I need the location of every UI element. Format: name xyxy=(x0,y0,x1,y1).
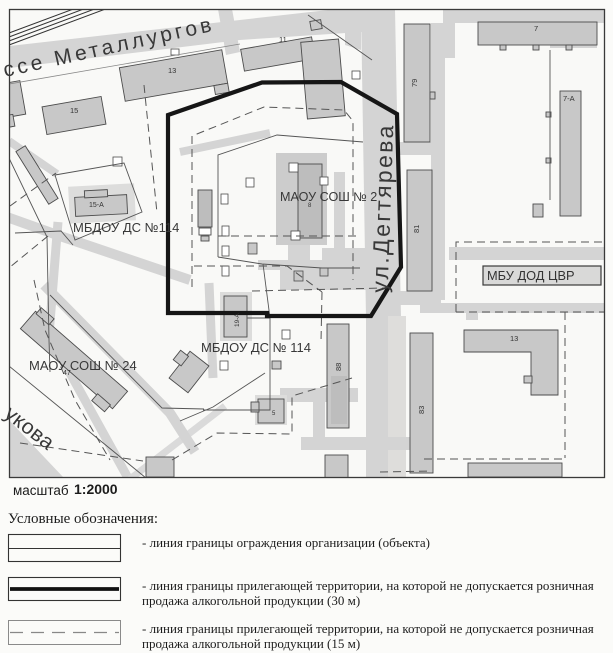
svg-text:19-А: 19-А xyxy=(234,313,241,327)
svg-text:МБДОУ ДС № 114: МБДОУ ДС № 114 xyxy=(201,340,311,355)
svg-text:МАОУ СОШ № 24: МАОУ СОШ № 24 xyxy=(29,358,137,373)
svg-text:81: 81 xyxy=(412,225,421,233)
svg-text:13: 13 xyxy=(168,66,176,75)
svg-text:- линия границы прилегающей те: - линия границы прилегающей территории, … xyxy=(142,621,594,636)
svg-text:МАОУ СОШ № 2: МАОУ СОШ № 2 xyxy=(280,190,377,204)
svg-text:79: 79 xyxy=(410,79,419,87)
svg-text:МБУ ДОД ЦВР: МБУ ДОД ЦВР xyxy=(487,268,575,283)
svg-text:Условные обозначения:: Условные обозначения: xyxy=(8,511,158,527)
svg-text:- линия границы ограждения орг: - линия границы ограждения организации (… xyxy=(142,535,430,550)
svg-text:продажа алкогольной продукции: продажа алкогольной продукции (30 м) xyxy=(142,593,360,608)
svg-text:МБДОУ ДС №114: МБДОУ ДС №114 xyxy=(73,220,179,235)
svg-text:1:2000: 1:2000 xyxy=(74,481,118,497)
svg-text:47: 47 xyxy=(63,370,71,377)
svg-text:- линия границы прилегающей те: - линия границы прилегающей территории, … xyxy=(142,578,594,593)
svg-text:13: 13 xyxy=(510,334,518,343)
svg-text:7-А: 7-А xyxy=(563,94,575,103)
svg-text:масштаб: масштаб xyxy=(13,483,69,498)
svg-text:15-А: 15-А xyxy=(89,202,104,209)
svg-text:11: 11 xyxy=(279,35,287,44)
svg-text:15: 15 xyxy=(70,106,78,115)
svg-text:88: 88 xyxy=(334,363,343,371)
svg-text:продажа алкогольной продукции: продажа алкогольной продукции (15 м) xyxy=(142,636,360,651)
svg-text:83: 83 xyxy=(417,406,426,414)
svg-text:7: 7 xyxy=(534,24,538,33)
